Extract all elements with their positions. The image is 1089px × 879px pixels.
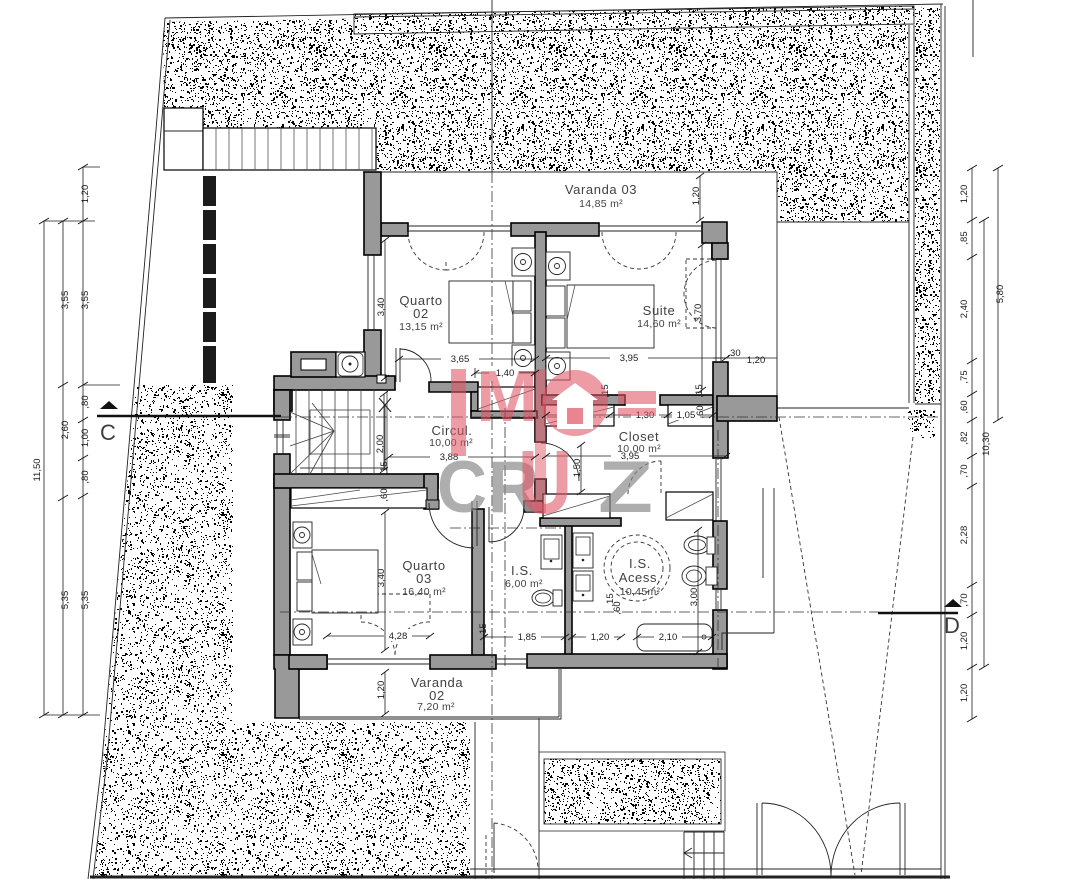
svg-text:2,10: 2,10 <box>659 632 678 643</box>
svg-text:Varanda 03: Varanda 03 <box>565 182 637 197</box>
svg-text:3,40: 3,40 <box>376 298 387 317</box>
svg-text:16,40 m²: 16,40 m² <box>402 586 446 598</box>
svg-text:U: U <box>518 433 572 533</box>
svg-text:1,20: 1,20 <box>80 185 91 204</box>
svg-text:2,28: 2,28 <box>959 526 970 545</box>
svg-text:7,20 m²: 7,20 m² <box>417 701 455 713</box>
svg-text:,60: ,60 <box>695 405 706 418</box>
svg-text:,70: ,70 <box>959 593 970 606</box>
svg-text:C: C <box>100 420 116 445</box>
svg-text:C: C <box>437 447 487 528</box>
svg-text:1,20: 1,20 <box>959 632 970 651</box>
svg-text:1,05: 1,05 <box>677 410 696 421</box>
svg-text:1,85: 1,85 <box>518 632 537 643</box>
svg-text:,60: ,60 <box>612 601 623 614</box>
svg-text:1,50: 1,50 <box>572 459 583 478</box>
svg-text:M: M <box>476 357 538 437</box>
svg-text:3,70: 3,70 <box>693 304 704 323</box>
svg-text:,80: ,80 <box>80 470 91 483</box>
svg-text:2,60: 2,60 <box>60 421 71 440</box>
svg-text:,75: ,75 <box>959 370 970 383</box>
svg-text:11,50: 11,50 <box>32 458 43 481</box>
svg-text:,60: ,60 <box>959 400 970 413</box>
svg-text:Closet: Closet <box>619 429 659 444</box>
svg-text:3,00: 3,00 <box>689 588 700 607</box>
svg-text:1,20: 1,20 <box>747 355 766 366</box>
svg-text:,80: ,80 <box>80 395 91 408</box>
svg-text:14,85 m²: 14,85 m² <box>579 198 623 210</box>
svg-text:,82: ,82 <box>959 431 970 444</box>
svg-text:Acess.: Acess. <box>619 570 662 585</box>
svg-text:1,20: 1,20 <box>376 681 387 700</box>
svg-text:,30: ,30 <box>727 348 740 359</box>
svg-text:13,15 m²: 13,15 m² <box>399 321 443 333</box>
svg-text:1,20: 1,20 <box>691 187 702 206</box>
svg-text:02: 02 <box>413 306 429 321</box>
svg-text:D: D <box>944 613 960 638</box>
svg-text:5,35: 5,35 <box>80 591 91 610</box>
svg-text:,85: ,85 <box>959 231 970 244</box>
svg-text:3,95: 3,95 <box>620 353 639 364</box>
svg-text:I.S.: I.S. <box>629 556 651 571</box>
svg-text:Suite: Suite <box>643 303 676 318</box>
svg-text:,60: ,60 <box>379 488 390 501</box>
svg-text:10,30: 10,30 <box>981 432 992 456</box>
svg-text:2,00: 2,00 <box>375 435 386 454</box>
svg-text:,15: ,15 <box>694 384 705 397</box>
svg-text:03: 03 <box>416 571 432 586</box>
svg-text:2,40: 2,40 <box>959 300 970 319</box>
svg-text:3,40: 3,40 <box>376 569 387 588</box>
svg-text:I.S.: I.S. <box>511 563 533 578</box>
svg-text:4,28: 4,28 <box>389 631 408 642</box>
svg-text:10,45m²: 10,45m² <box>620 586 661 598</box>
svg-text:1,20: 1,20 <box>959 684 970 703</box>
svg-text:6,00 m²: 6,00 m² <box>505 578 543 590</box>
svg-text:3,55: 3,55 <box>80 291 91 310</box>
svg-text:1,00: 1,00 <box>80 429 91 448</box>
svg-text:5,35: 5,35 <box>60 591 71 610</box>
svg-text:1,20: 1,20 <box>591 632 610 643</box>
svg-text:3,65: 3,65 <box>451 354 470 365</box>
svg-text:1,20: 1,20 <box>959 185 970 204</box>
svg-text:5,80: 5,80 <box>995 285 1006 304</box>
svg-text:3,55: 3,55 <box>60 291 71 310</box>
svg-text:14,60 m²: 14,60 m² <box>637 318 681 330</box>
svg-text:,70: ,70 <box>959 464 970 477</box>
svg-text:Z: Z <box>598 447 653 528</box>
